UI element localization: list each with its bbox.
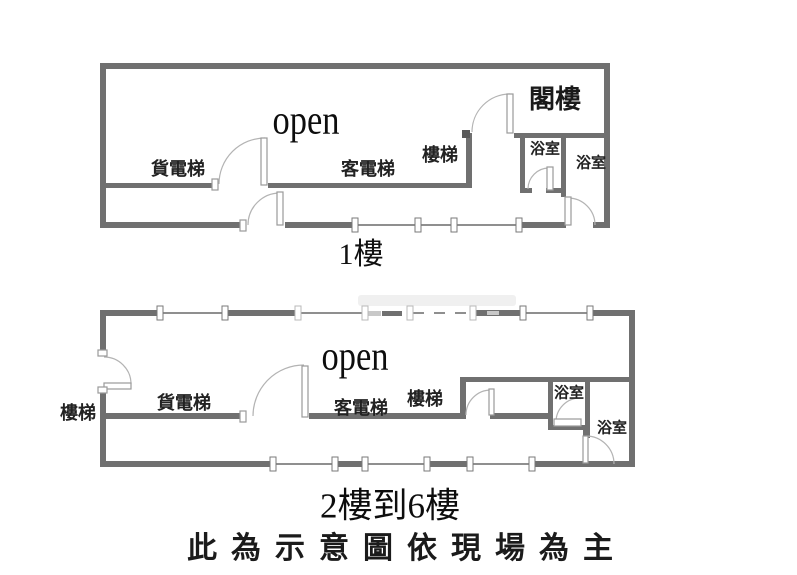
- open-area-label-1f: open: [273, 100, 340, 141]
- attic-label: 閣樓: [529, 87, 581, 113]
- floor-caption-1f: 1樓: [339, 240, 384, 270]
- plan2-walls: [100, 295, 635, 471]
- bathroom2-label-1f: 浴室: [576, 157, 606, 172]
- bathroom2-label-2f: 浴室: [597, 422, 627, 437]
- bathroom1-label-1f: 浴室: [530, 143, 560, 158]
- floor-caption-2f: 2樓到6樓: [320, 489, 460, 524]
- freight-elevator-label-1f: 貨電梯: [151, 160, 205, 178]
- passenger-elevator-label-1f: 客電梯: [341, 160, 395, 178]
- floor-plan-page: open 閣樓 貨電梯 客電梯 樓梯 浴室 浴室 1樓 open 樓梯 貨電梯 …: [0, 0, 797, 575]
- passenger-elevator-label-2f: 客電梯: [334, 399, 388, 417]
- bathroom1-label-2f: 浴室: [554, 387, 584, 402]
- stairs-outside-label-2f: 樓梯: [60, 404, 96, 422]
- disclaimer-text: 此為示意圖依現場為主: [187, 534, 627, 564]
- open-area-label-2f: open: [322, 336, 389, 377]
- stairs-label-1f: 樓梯: [422, 146, 458, 164]
- freight-elevator-label-2f: 貨電梯: [157, 394, 211, 412]
- stairs-label-2f: 樓梯: [407, 390, 443, 408]
- plan1-doors: [212, 94, 595, 231]
